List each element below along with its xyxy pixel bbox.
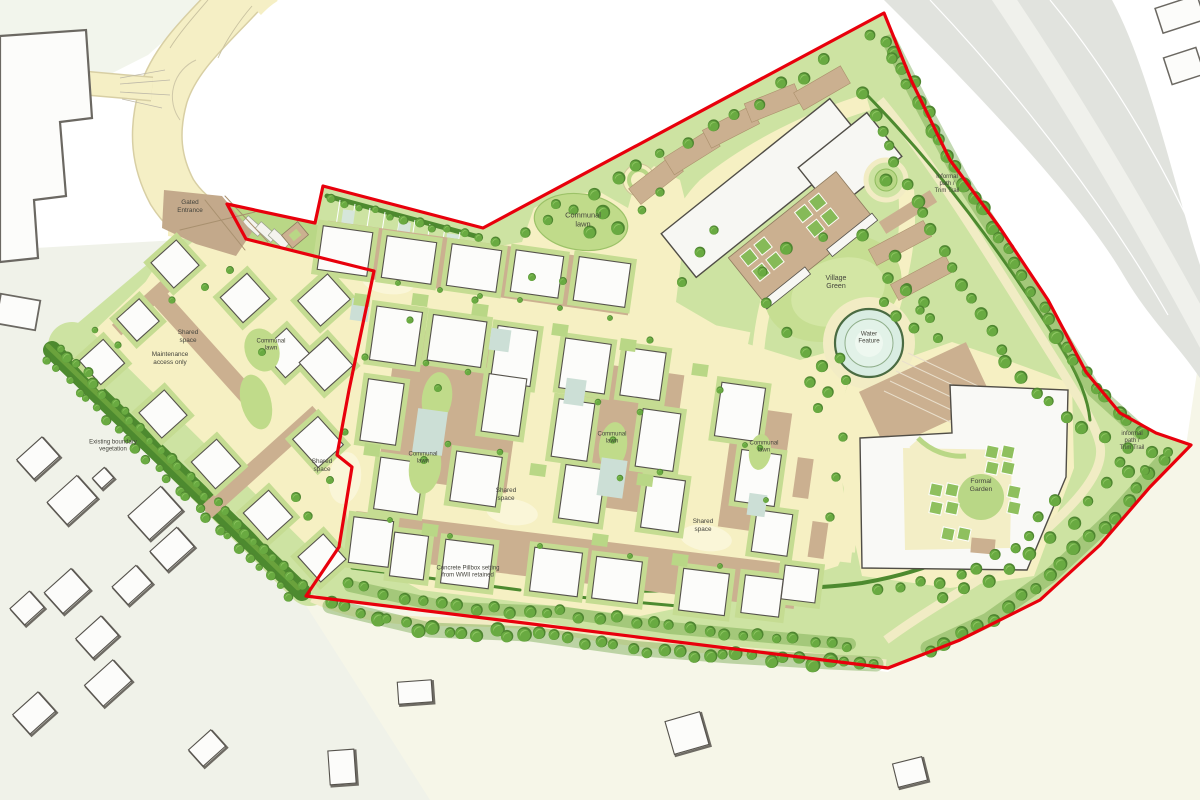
- svg-text:WaterFeature: WaterFeature: [858, 330, 880, 344]
- svg-text:VillageGreen: VillageGreen: [826, 275, 847, 290]
- svg-text:FormalGarden: FormalGarden: [970, 478, 993, 493]
- svg-text:Concrete Pillbox settingfrom W: Concrete Pillbox settingfrom WWII retain…: [436, 565, 499, 578]
- svg-text:Maintenanceaccess only: Maintenanceaccess only: [152, 351, 189, 366]
- svg-text:Sharedspace: Sharedspace: [178, 329, 199, 344]
- svg-text:Sharedspace: Sharedspace: [496, 487, 517, 502]
- svg-text:Sharedspace: Sharedspace: [693, 518, 714, 533]
- svg-text:Sharedspace: Sharedspace: [312, 458, 333, 473]
